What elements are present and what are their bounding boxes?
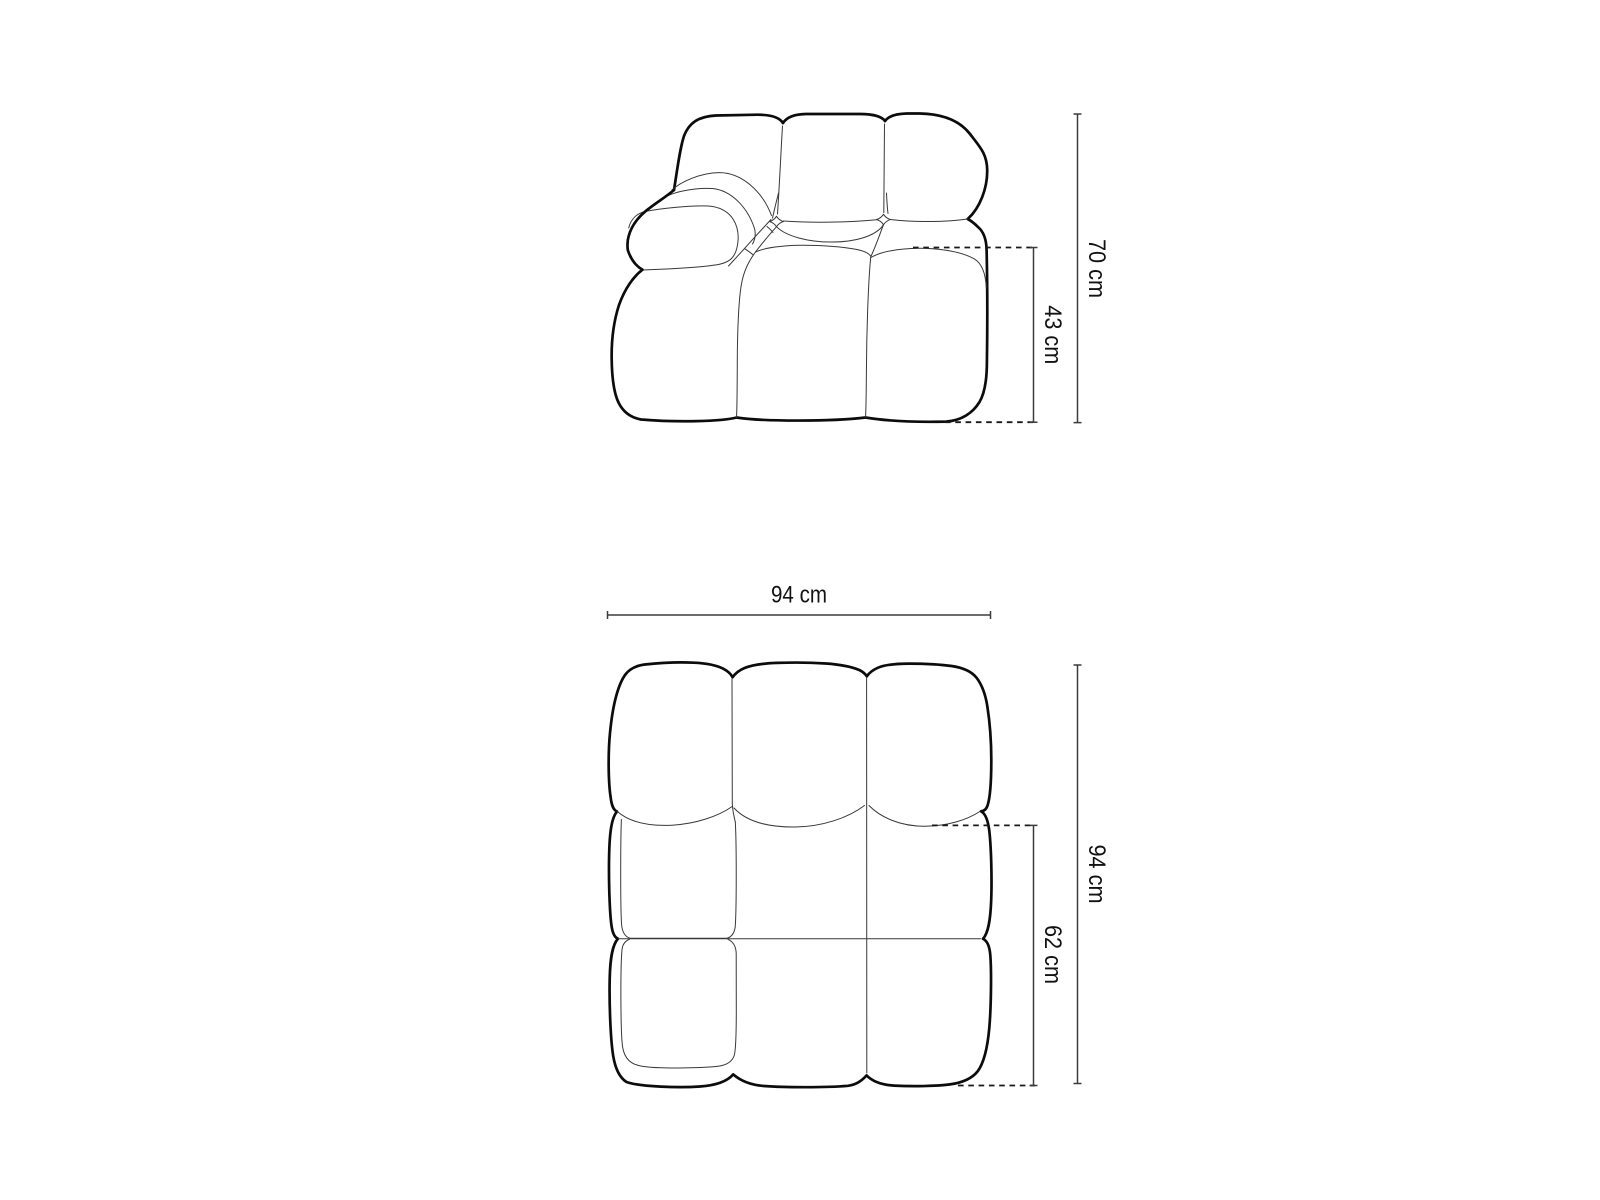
svg-text:94 cm: 94 cm — [1083, 845, 1110, 904]
svg-text:43 cm: 43 cm — [1039, 305, 1066, 364]
svg-text:94 cm: 94 cm — [771, 582, 827, 609]
svg-text:62 cm: 62 cm — [1039, 925, 1066, 984]
svg-text:70 cm: 70 cm — [1083, 239, 1110, 298]
